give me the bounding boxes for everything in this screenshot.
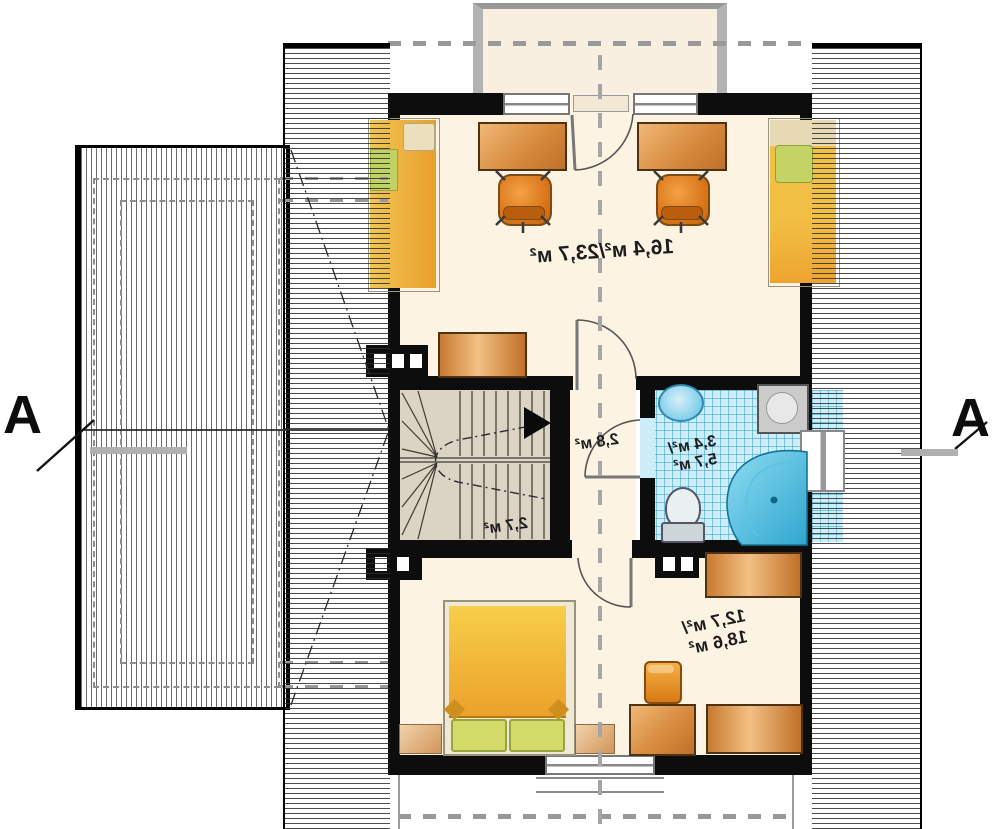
wall-bath-left-upper: [640, 390, 655, 418]
section-marker-left: A: [3, 388, 42, 442]
bed-double: [443, 600, 576, 756]
hall-door-opening-top: [573, 376, 636, 390]
bathroom-door-opening: [640, 418, 655, 478]
section-bar-right: [901, 449, 958, 456]
blanket: [449, 606, 566, 718]
dresser-bedroom-bottom: [706, 704, 803, 754]
window-bathroom: [800, 430, 845, 492]
section-marker-right: A: [951, 391, 990, 445]
desk-bedroom: [629, 704, 696, 756]
desk-chair-left-back: [503, 206, 545, 220]
wall-stairs-right: [550, 390, 570, 540]
roof-hatch-left: [283, 43, 390, 829]
floor-plan: A A 16,4 м²/23,7 м² 2,8 м² 2,7 м² 3,4 м²…: [0, 0, 1000, 829]
pillow: [403, 123, 435, 151]
nightstand-left: [399, 724, 442, 754]
dresser-by-stairs: [438, 332, 527, 378]
wall-bath-left-lower: [640, 478, 655, 540]
desk-chair-right-back: [661, 206, 703, 220]
window-top-left: [503, 93, 570, 115]
shower-tray: [757, 384, 809, 434]
wall-top-right: [698, 93, 800, 115]
pillow-left: [451, 719, 507, 752]
section-bar-left: [90, 447, 187, 454]
pillow-green: [775, 145, 813, 183]
garage-roof-dashed-outline-inner: [120, 200, 254, 664]
toilet-tank: [661, 522, 705, 543]
wall-mid-upper-left: [388, 376, 573, 390]
staircase-floor: [400, 390, 550, 540]
nightstand-right: [575, 724, 615, 754]
wall-bottom-left: [388, 755, 545, 775]
stool: [644, 661, 682, 704]
wall-top-left: [388, 93, 503, 115]
hall-floor: [570, 390, 636, 540]
dresser-bedroom-top: [705, 552, 802, 598]
chimney-flue-lower-right: [655, 548, 699, 578]
shower-drain: [766, 392, 798, 424]
desk-right: [637, 122, 727, 171]
sink: [658, 384, 704, 422]
pillow-right: [509, 719, 565, 752]
top-eave-dashed-line: [388, 41, 812, 46]
bottom-eave-dashed-line: [398, 814, 790, 819]
window-top-right: [633, 93, 698, 115]
desk-left: [478, 122, 567, 171]
wall-bottom-right: [655, 755, 812, 775]
bedroom-door-opening: [572, 540, 632, 558]
